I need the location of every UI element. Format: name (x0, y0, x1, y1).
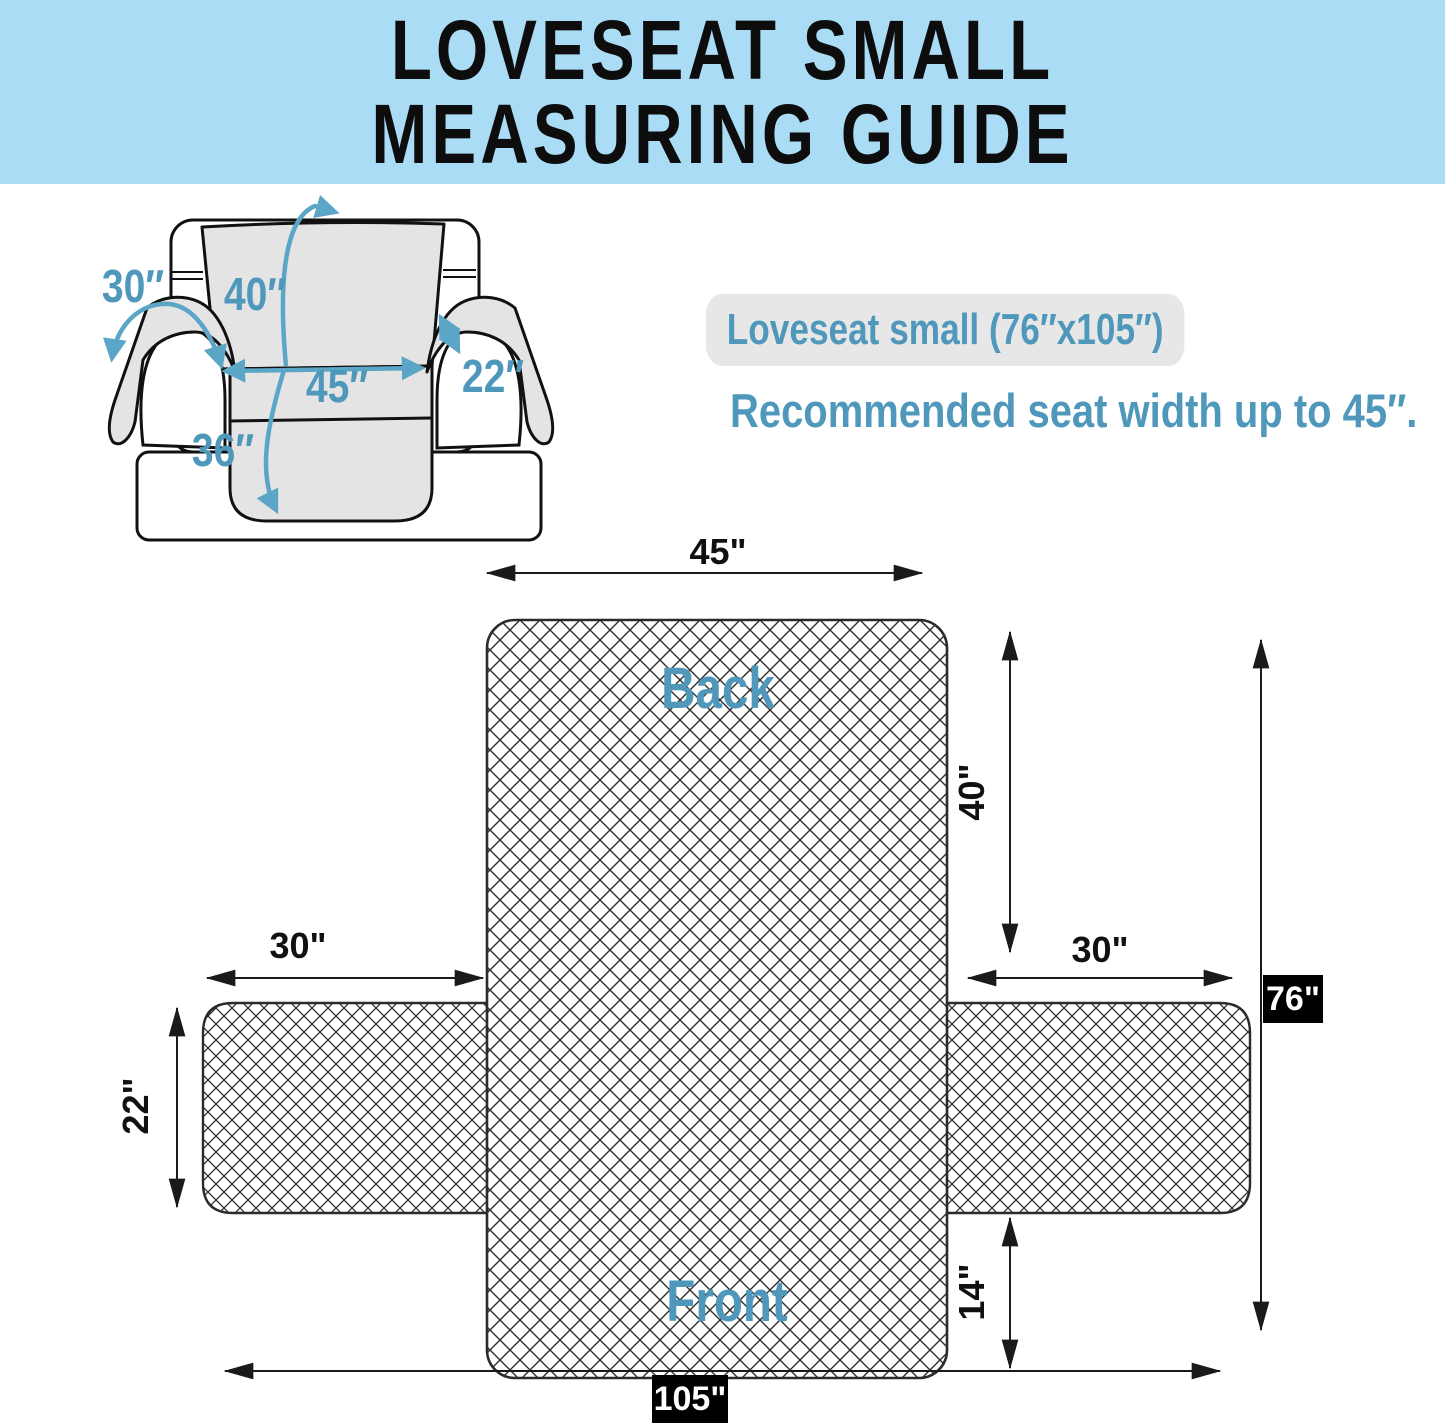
flat-pattern-diagram: Back Front 45" 40" 30" 30" 22" 14" 76" 1… (0, 520, 1445, 1426)
total-width-label: 105" (654, 1380, 727, 1418)
header-banner: LOVESEAT SMALL MEASURING GUIDE (0, 0, 1445, 184)
recommendation-text: Recommended seat width up to 45″. (730, 384, 1417, 438)
total-height-label: 76" (1266, 980, 1320, 1018)
left-arm-length-label: 30" (269, 925, 326, 966)
back-height-label: 40" (951, 763, 992, 820)
top-width-label: 45" (689, 531, 746, 572)
size-label-text: Loveseat small (76″x105″) (727, 305, 1164, 354)
right-arm-length-label: 30" (1071, 929, 1128, 970)
size-label-pill: Loveseat small (76″x105″) (706, 294, 1184, 366)
loveseat-illustration: 30″ 40″ 45″ 22″ 36″ (85, 190, 725, 570)
page-title-line1: LOVESEAT SMALL (145, 8, 1301, 92)
back-drape-length-label: 40″ (224, 269, 286, 321)
back-zone-label: Back (661, 657, 775, 722)
page-title-line2: MEASURING GUIDE (145, 92, 1301, 176)
measuring-guide-page: LOVESEAT SMALL MEASURING GUIDE (0, 0, 1445, 1426)
arm-width-label: 22" (115, 1077, 156, 1134)
front-skirt-height-label: 14" (951, 1263, 992, 1320)
total-height-badge: 76" (1263, 975, 1323, 1023)
pattern-center-panel (487, 620, 947, 1378)
seat-width-label: 45″ (306, 361, 368, 413)
arm-top-width-label: 22″ (462, 351, 524, 403)
total-width-badge: 105" (652, 1375, 728, 1423)
pattern-right-arm (942, 1003, 1250, 1213)
pattern-left-arm (203, 1003, 493, 1213)
seat-drape-length-label: 36″ (192, 425, 254, 477)
arm-flap-length-label: 30″ (102, 261, 164, 313)
front-zone-label: Front (666, 1270, 787, 1335)
